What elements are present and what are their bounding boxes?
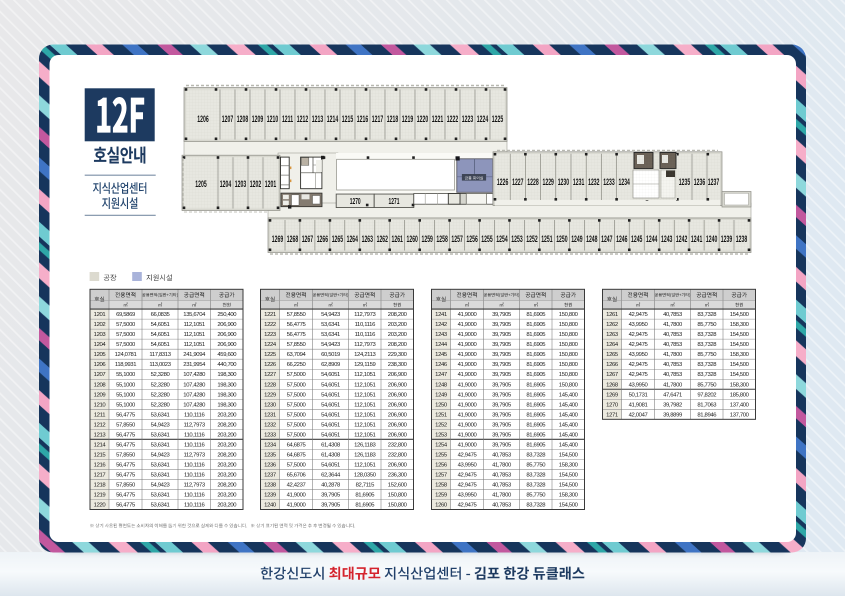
svg-text:1202: 1202 bbox=[94, 322, 106, 328]
svg-text:110,1116: 110,1116 bbox=[355, 322, 377, 328]
svg-text:137,700: 137,700 bbox=[730, 412, 750, 418]
svg-text:97,8202: 97,8202 bbox=[697, 392, 716, 398]
svg-text:56,4775: 56,4775 bbox=[116, 412, 136, 418]
svg-text:203,200: 203,200 bbox=[217, 472, 237, 478]
svg-text:39,7905: 39,7905 bbox=[492, 312, 512, 318]
svg-text:198,300: 198,300 bbox=[217, 382, 237, 388]
svg-text:154,500: 154,500 bbox=[730, 342, 750, 348]
svg-text:83,7328: 83,7328 bbox=[526, 472, 546, 478]
svg-text:42,0047: 42,0047 bbox=[629, 412, 648, 418]
svg-text:40,7853: 40,7853 bbox=[663, 332, 683, 338]
svg-text:43,9950: 43,9950 bbox=[458, 492, 478, 498]
svg-text:39,7905: 39,7905 bbox=[492, 412, 512, 418]
svg-text:107,4280: 107,4280 bbox=[183, 372, 206, 378]
svg-text:57,8550: 57,8550 bbox=[287, 312, 307, 318]
svg-text:57,8550: 57,8550 bbox=[116, 422, 136, 428]
svg-text:1258: 1258 bbox=[435, 482, 448, 488]
svg-text:1231: 1231 bbox=[264, 412, 276, 418]
svg-text:56,4775: 56,4775 bbox=[116, 492, 136, 498]
svg-text:203,200: 203,200 bbox=[388, 322, 408, 328]
svg-text:206,900: 206,900 bbox=[217, 342, 237, 348]
svg-text:1229: 1229 bbox=[264, 392, 276, 398]
svg-text:137,400: 137,400 bbox=[730, 402, 750, 408]
svg-text:41,7800: 41,7800 bbox=[492, 462, 512, 468]
svg-text:1240: 1240 bbox=[264, 502, 277, 508]
svg-text:85,7750: 85,7750 bbox=[526, 492, 546, 498]
svg-text:203,200: 203,200 bbox=[217, 492, 237, 498]
svg-text:43,9950: 43,9950 bbox=[629, 352, 649, 358]
svg-text:206,900: 206,900 bbox=[217, 332, 237, 338]
svg-text:112,7973: 112,7973 bbox=[184, 422, 206, 428]
svg-text:1260: 1260 bbox=[435, 502, 448, 508]
svg-text:135,6704: 135,6704 bbox=[183, 312, 206, 318]
svg-text:1205: 1205 bbox=[94, 352, 107, 358]
svg-text:81,6905: 81,6905 bbox=[526, 352, 546, 358]
svg-text:112,1051: 112,1051 bbox=[184, 332, 205, 338]
svg-text:1207: 1207 bbox=[94, 372, 106, 378]
svg-text:1210: 1210 bbox=[94, 402, 107, 408]
svg-text:39,7905: 39,7905 bbox=[492, 402, 512, 408]
svg-text:81,6905: 81,6905 bbox=[526, 432, 546, 438]
svg-text:1268: 1268 bbox=[606, 382, 619, 388]
svg-text:112,1051: 112,1051 bbox=[184, 342, 205, 348]
svg-text:1216: 1216 bbox=[94, 462, 107, 468]
svg-text:41,9000: 41,9000 bbox=[458, 412, 478, 418]
svg-text:63,7094: 63,7094 bbox=[287, 352, 307, 358]
svg-text:41,7800: 41,7800 bbox=[663, 322, 683, 328]
svg-text:42,9475: 42,9475 bbox=[458, 482, 478, 488]
svg-text:57,5000: 57,5000 bbox=[287, 372, 307, 378]
svg-text:1262: 1262 bbox=[606, 322, 618, 328]
svg-text:110,1116: 110,1116 bbox=[184, 472, 206, 478]
svg-text:203,200: 203,200 bbox=[217, 502, 237, 508]
svg-text:203,200: 203,200 bbox=[217, 412, 237, 418]
svg-text:145,400: 145,400 bbox=[559, 402, 579, 408]
svg-text:50,1731: 50,1731 bbox=[629, 392, 648, 398]
svg-text:57,8550: 57,8550 bbox=[116, 482, 136, 488]
svg-text:42,9475: 42,9475 bbox=[458, 502, 478, 508]
svg-text:1253: 1253 bbox=[435, 432, 448, 438]
svg-text:56,4775: 56,4775 bbox=[116, 462, 136, 468]
svg-text:52,3280: 52,3280 bbox=[151, 402, 171, 408]
svg-text:40,7853: 40,7853 bbox=[492, 482, 512, 488]
svg-text:41,9000: 41,9000 bbox=[458, 372, 478, 378]
svg-text:203,200: 203,200 bbox=[217, 442, 237, 448]
svg-text:85,7750: 85,7750 bbox=[697, 382, 717, 388]
svg-text:107,4280: 107,4280 bbox=[183, 392, 206, 398]
svg-text:83,7328: 83,7328 bbox=[697, 372, 717, 378]
svg-text:112,1051: 112,1051 bbox=[354, 422, 375, 428]
svg-text:81,6905: 81,6905 bbox=[526, 342, 546, 348]
svg-text:1247: 1247 bbox=[435, 372, 447, 378]
svg-text:81,6905: 81,6905 bbox=[526, 402, 546, 408]
svg-text:83,7328: 83,7328 bbox=[697, 362, 717, 368]
svg-text:154,500: 154,500 bbox=[559, 502, 579, 508]
svg-text:1221: 1221 bbox=[264, 312, 276, 318]
svg-text:1270: 1270 bbox=[606, 402, 619, 408]
svg-text:208,200: 208,200 bbox=[388, 342, 408, 348]
svg-text:53,6341: 53,6341 bbox=[151, 502, 170, 508]
svg-text:1219: 1219 bbox=[94, 492, 106, 498]
svg-text:241,9094: 241,9094 bbox=[183, 352, 206, 358]
svg-text:41,9000: 41,9000 bbox=[287, 492, 307, 498]
svg-text:110,1116: 110,1116 bbox=[184, 492, 206, 498]
svg-text:54,6051: 54,6051 bbox=[321, 432, 340, 438]
svg-text:85,7750: 85,7750 bbox=[697, 352, 717, 358]
svg-text:40,7853: 40,7853 bbox=[492, 452, 512, 458]
svg-text:81,6905: 81,6905 bbox=[526, 322, 546, 328]
svg-text:1239: 1239 bbox=[264, 492, 276, 498]
svg-text:41,9000: 41,9000 bbox=[458, 352, 478, 358]
svg-text:43,9950: 43,9950 bbox=[629, 322, 649, 328]
svg-text:206,900: 206,900 bbox=[217, 322, 237, 328]
svg-text:81,6905: 81,6905 bbox=[526, 312, 546, 318]
svg-text:1222: 1222 bbox=[264, 322, 276, 328]
svg-text:150,800: 150,800 bbox=[559, 382, 579, 388]
svg-text:42,9475: 42,9475 bbox=[629, 332, 649, 338]
svg-text:126,1183: 126,1183 bbox=[354, 452, 376, 458]
svg-text:42,9475: 42,9475 bbox=[629, 362, 649, 368]
svg-text:54,6051: 54,6051 bbox=[321, 372, 340, 378]
svg-text:81,6905: 81,6905 bbox=[526, 362, 546, 368]
svg-text:152,600: 152,600 bbox=[388, 482, 408, 488]
svg-text:440,700: 440,700 bbox=[217, 362, 237, 368]
svg-text:43,9950: 43,9950 bbox=[458, 462, 478, 468]
svg-text:39,7905: 39,7905 bbox=[492, 442, 512, 448]
svg-text:41,9000: 41,9000 bbox=[458, 342, 478, 348]
svg-text:1246: 1246 bbox=[435, 362, 448, 368]
svg-text:1232: 1232 bbox=[264, 422, 276, 428]
svg-text:198,300: 198,300 bbox=[217, 372, 237, 378]
svg-text:203,200: 203,200 bbox=[217, 432, 237, 438]
svg-text:1256: 1256 bbox=[435, 462, 448, 468]
svg-text:107,4280: 107,4280 bbox=[183, 382, 206, 388]
svg-text:39,7905: 39,7905 bbox=[321, 502, 341, 508]
svg-text:57,5000: 57,5000 bbox=[287, 392, 307, 398]
svg-text:150,800: 150,800 bbox=[559, 352, 579, 358]
svg-text:1230: 1230 bbox=[264, 402, 277, 408]
svg-text:41,9000: 41,9000 bbox=[458, 432, 478, 438]
svg-text:39,7905: 39,7905 bbox=[492, 422, 512, 428]
svg-text:39,7982: 39,7982 bbox=[663, 402, 682, 408]
svg-text:62,3644: 62,3644 bbox=[321, 472, 341, 478]
svg-text:81,6905: 81,6905 bbox=[355, 502, 375, 508]
svg-text:54,6051: 54,6051 bbox=[151, 342, 170, 348]
svg-text:208,200: 208,200 bbox=[217, 482, 237, 488]
svg-text:1236: 1236 bbox=[264, 462, 277, 468]
svg-text:41,9000: 41,9000 bbox=[458, 312, 478, 318]
svg-text:56,4775: 56,4775 bbox=[116, 432, 136, 438]
svg-text:39,7905: 39,7905 bbox=[492, 362, 512, 368]
svg-text:113,0023: 113,0023 bbox=[149, 362, 171, 368]
svg-text:54,9423: 54,9423 bbox=[321, 342, 341, 348]
svg-text:40,7853: 40,7853 bbox=[663, 372, 683, 378]
svg-text:1244: 1244 bbox=[435, 342, 448, 348]
svg-text:66,2250: 66,2250 bbox=[287, 362, 307, 368]
svg-text:52,3280: 52,3280 bbox=[151, 392, 171, 398]
svg-text:53,6341: 53,6341 bbox=[321, 322, 340, 328]
svg-text:54,6051: 54,6051 bbox=[321, 412, 340, 418]
svg-text:56,4775: 56,4775 bbox=[116, 442, 136, 448]
svg-text:118,9931: 118,9931 bbox=[115, 362, 136, 368]
svg-text:124,2113: 124,2113 bbox=[354, 352, 376, 358]
svg-text:41,9000: 41,9000 bbox=[287, 502, 307, 508]
svg-text:1252: 1252 bbox=[435, 422, 447, 428]
svg-text:1224: 1224 bbox=[264, 342, 277, 348]
svg-text:231,9954: 231,9954 bbox=[183, 362, 206, 368]
svg-text:1223: 1223 bbox=[264, 332, 277, 338]
svg-text:1234: 1234 bbox=[264, 442, 277, 448]
svg-text:39,7905: 39,7905 bbox=[492, 382, 512, 388]
svg-text:1227: 1227 bbox=[264, 372, 276, 378]
svg-text:1233: 1233 bbox=[264, 432, 277, 438]
svg-text:112,7973: 112,7973 bbox=[184, 452, 206, 458]
svg-text:53,6341: 53,6341 bbox=[151, 492, 170, 498]
svg-text:85,7750: 85,7750 bbox=[697, 322, 717, 328]
svg-text:56,4775: 56,4775 bbox=[287, 322, 307, 328]
svg-text:1228: 1228 bbox=[264, 382, 277, 388]
svg-text:112,1051: 112,1051 bbox=[354, 412, 375, 418]
svg-text:1254: 1254 bbox=[435, 442, 448, 448]
svg-text:57,5000: 57,5000 bbox=[116, 342, 136, 348]
svg-text:52,3280: 52,3280 bbox=[151, 382, 171, 388]
svg-text:154,500: 154,500 bbox=[559, 482, 579, 488]
svg-text:40,7853: 40,7853 bbox=[663, 342, 683, 348]
svg-text:112,1051: 112,1051 bbox=[354, 382, 375, 388]
svg-text:1263: 1263 bbox=[606, 332, 619, 338]
svg-text:145,400: 145,400 bbox=[559, 392, 579, 398]
svg-text:41,9000: 41,9000 bbox=[458, 442, 478, 448]
svg-text:83,7328: 83,7328 bbox=[697, 332, 717, 338]
svg-text:229,300: 229,300 bbox=[388, 352, 408, 358]
svg-text:110,1116: 110,1116 bbox=[184, 462, 206, 468]
svg-text:150,800: 150,800 bbox=[388, 502, 408, 508]
svg-text:39,8899: 39,8899 bbox=[663, 412, 682, 418]
svg-text:1269: 1269 bbox=[606, 392, 618, 398]
svg-text:57,5000: 57,5000 bbox=[116, 332, 136, 338]
svg-text:57,5000: 57,5000 bbox=[287, 402, 307, 408]
svg-text:112,1051: 112,1051 bbox=[184, 322, 205, 328]
svg-text:57,8550: 57,8550 bbox=[287, 342, 307, 348]
svg-text:459,600: 459,600 bbox=[217, 352, 237, 358]
svg-text:39,7905: 39,7905 bbox=[492, 372, 512, 378]
svg-text:81,6905: 81,6905 bbox=[526, 422, 546, 428]
svg-text:1226: 1226 bbox=[264, 362, 277, 368]
svg-text:1220: 1220 bbox=[94, 502, 107, 508]
svg-text:40,7853: 40,7853 bbox=[663, 312, 683, 318]
svg-text:158,300: 158,300 bbox=[730, 322, 750, 328]
svg-text:53,6341: 53,6341 bbox=[151, 462, 170, 468]
svg-text:232,800: 232,800 bbox=[388, 452, 408, 458]
svg-text:81,6905: 81,6905 bbox=[526, 392, 546, 398]
svg-text:117,8313: 117,8313 bbox=[149, 352, 171, 358]
svg-text:53,6341: 53,6341 bbox=[151, 472, 170, 478]
svg-text:57,8550: 57,8550 bbox=[116, 452, 136, 458]
svg-text:203,200: 203,200 bbox=[388, 332, 408, 338]
svg-text:128,0350: 128,0350 bbox=[354, 472, 377, 478]
svg-text:1211: 1211 bbox=[94, 412, 105, 418]
svg-text:83,7328: 83,7328 bbox=[526, 452, 546, 458]
svg-text:56,4775: 56,4775 bbox=[116, 472, 136, 478]
svg-text:1215: 1215 bbox=[94, 452, 107, 458]
svg-text:47,6471: 47,6471 bbox=[663, 392, 682, 398]
svg-text:64,6875: 64,6875 bbox=[287, 452, 307, 458]
svg-text:42,9475: 42,9475 bbox=[629, 372, 649, 378]
svg-text:54,6051: 54,6051 bbox=[151, 322, 170, 328]
svg-text:236,300: 236,300 bbox=[388, 472, 408, 478]
svg-text:126,1183: 126,1183 bbox=[354, 442, 376, 448]
svg-text:42,9475: 42,9475 bbox=[458, 472, 478, 478]
svg-text:39,7905: 39,7905 bbox=[492, 352, 512, 358]
svg-text:112,1051: 112,1051 bbox=[354, 462, 375, 468]
svg-text:42,9475: 42,9475 bbox=[629, 312, 649, 318]
svg-text:1214: 1214 bbox=[94, 442, 107, 448]
svg-text:41,9000: 41,9000 bbox=[458, 382, 478, 388]
svg-text:83,7328: 83,7328 bbox=[697, 312, 717, 318]
svg-text:208,200: 208,200 bbox=[388, 312, 408, 318]
svg-text:61,4308: 61,4308 bbox=[321, 452, 341, 458]
svg-text:112,7973: 112,7973 bbox=[354, 312, 376, 318]
svg-text:40,7853: 40,7853 bbox=[663, 362, 683, 368]
svg-text:145,400: 145,400 bbox=[559, 442, 579, 448]
svg-text:54,6051: 54,6051 bbox=[321, 392, 340, 398]
svg-text:41,9000: 41,9000 bbox=[458, 332, 478, 338]
svg-text:1266: 1266 bbox=[606, 362, 619, 368]
svg-text:53,6341: 53,6341 bbox=[151, 412, 170, 418]
svg-text:42,9475: 42,9475 bbox=[629, 342, 649, 348]
svg-text:124,0781: 124,0781 bbox=[115, 352, 137, 358]
svg-text:1255: 1255 bbox=[435, 452, 448, 458]
svg-text:150,800: 150,800 bbox=[559, 332, 579, 338]
svg-text:112,1051: 112,1051 bbox=[354, 432, 375, 438]
svg-text:112,1051: 112,1051 bbox=[354, 372, 375, 378]
svg-text:54,9423: 54,9423 bbox=[151, 452, 171, 458]
svg-text:1245: 1245 bbox=[435, 352, 448, 358]
svg-text:1237: 1237 bbox=[264, 472, 276, 478]
svg-text:150,800: 150,800 bbox=[559, 342, 579, 348]
svg-text:57,5000: 57,5000 bbox=[287, 382, 307, 388]
svg-text:1208: 1208 bbox=[94, 382, 107, 388]
svg-text:154,500: 154,500 bbox=[559, 472, 579, 478]
svg-text:54,9423: 54,9423 bbox=[151, 422, 171, 428]
svg-text:41,9000: 41,9000 bbox=[458, 322, 478, 328]
svg-text:110,1116: 110,1116 bbox=[184, 432, 206, 438]
svg-text:54,6051: 54,6051 bbox=[321, 422, 340, 428]
svg-text:39,7905: 39,7905 bbox=[492, 342, 512, 348]
svg-text:150,800: 150,800 bbox=[559, 362, 579, 368]
svg-text:41,9000: 41,9000 bbox=[458, 422, 478, 428]
svg-text:41,7800: 41,7800 bbox=[663, 382, 683, 388]
svg-text:150,800: 150,800 bbox=[559, 372, 579, 378]
svg-text:158,300: 158,300 bbox=[730, 382, 750, 388]
svg-text:238,300: 238,300 bbox=[388, 362, 408, 368]
svg-text:206,900: 206,900 bbox=[388, 462, 408, 468]
svg-text:154,500: 154,500 bbox=[730, 312, 750, 318]
svg-text:60,5019: 60,5019 bbox=[321, 352, 340, 358]
svg-text:81,6905: 81,6905 bbox=[526, 412, 546, 418]
svg-text:206,900: 206,900 bbox=[388, 392, 408, 398]
svg-text:206,900: 206,900 bbox=[388, 382, 408, 388]
svg-text:41,9000: 41,9000 bbox=[458, 362, 478, 368]
svg-text:206,900: 206,900 bbox=[388, 412, 408, 418]
svg-text:81,6905: 81,6905 bbox=[526, 332, 546, 338]
svg-text:62,8909: 62,8909 bbox=[321, 362, 340, 368]
svg-text:107,4280: 107,4280 bbox=[183, 402, 206, 408]
svg-text:64,6875: 64,6875 bbox=[287, 442, 307, 448]
svg-text:110,1116: 110,1116 bbox=[184, 502, 206, 508]
svg-text:53,6341: 53,6341 bbox=[321, 332, 340, 338]
svg-text:39,7905: 39,7905 bbox=[492, 432, 512, 438]
svg-text:129,1159: 129,1159 bbox=[354, 362, 375, 368]
svg-text:145,400: 145,400 bbox=[559, 432, 579, 438]
svg-text:40,7853: 40,7853 bbox=[492, 502, 512, 508]
svg-text:150,800: 150,800 bbox=[388, 492, 408, 498]
svg-text:41,9000: 41,9000 bbox=[458, 392, 478, 398]
svg-text:112,1051: 112,1051 bbox=[354, 392, 375, 398]
svg-text:83,7328: 83,7328 bbox=[526, 502, 546, 508]
svg-text:1249: 1249 bbox=[435, 392, 447, 398]
svg-text:158,300: 158,300 bbox=[559, 462, 579, 468]
svg-text:43,9950: 43,9950 bbox=[629, 382, 649, 388]
svg-text:41,9081: 41,9081 bbox=[629, 402, 648, 408]
svg-text:1242: 1242 bbox=[435, 322, 447, 328]
svg-text:81,6905: 81,6905 bbox=[526, 442, 546, 448]
svg-text:206,900: 206,900 bbox=[388, 372, 408, 378]
svg-text:150,800: 150,800 bbox=[559, 322, 579, 328]
svg-text:83,7328: 83,7328 bbox=[697, 342, 717, 348]
svg-text:66,0835: 66,0835 bbox=[151, 312, 171, 318]
svg-text:112,7973: 112,7973 bbox=[354, 342, 376, 348]
svg-text:112,1051: 112,1051 bbox=[354, 402, 375, 408]
svg-text:154,500: 154,500 bbox=[730, 332, 750, 338]
svg-text:206,900: 206,900 bbox=[388, 422, 408, 428]
svg-text:110,1116: 110,1116 bbox=[184, 412, 206, 418]
svg-text:57,5000: 57,5000 bbox=[287, 412, 307, 418]
svg-text:1248: 1248 bbox=[435, 382, 448, 388]
svg-text:154,500: 154,500 bbox=[559, 452, 579, 458]
svg-text:198,300: 198,300 bbox=[217, 392, 237, 398]
svg-text:145,400: 145,400 bbox=[559, 422, 579, 428]
svg-text:1241: 1241 bbox=[435, 312, 447, 318]
svg-text:158,300: 158,300 bbox=[730, 352, 750, 358]
svg-text:52,3280: 52,3280 bbox=[151, 372, 171, 378]
svg-text:42,4237: 42,4237 bbox=[287, 482, 306, 488]
svg-text:39,7905: 39,7905 bbox=[492, 392, 512, 398]
svg-text:1217: 1217 bbox=[94, 472, 106, 478]
svg-text:82,7115: 82,7115 bbox=[356, 482, 375, 488]
svg-text:81,8946: 81,8946 bbox=[697, 412, 717, 418]
svg-text:1206: 1206 bbox=[94, 362, 107, 368]
svg-text:54,6051: 54,6051 bbox=[321, 402, 340, 408]
svg-text:40,7853: 40,7853 bbox=[492, 472, 512, 478]
svg-text:81,6905: 81,6905 bbox=[355, 492, 375, 498]
svg-text:54,6051: 54,6051 bbox=[321, 462, 340, 468]
svg-text:41,7800: 41,7800 bbox=[663, 352, 683, 358]
svg-text:1204: 1204 bbox=[94, 342, 107, 348]
svg-text:55,1000: 55,1000 bbox=[116, 392, 136, 398]
svg-text:54,9423: 54,9423 bbox=[151, 482, 171, 488]
svg-text:154,500: 154,500 bbox=[730, 372, 750, 378]
svg-text:56,4775: 56,4775 bbox=[287, 332, 307, 338]
svg-text:53,6341: 53,6341 bbox=[151, 432, 170, 438]
svg-text:1212: 1212 bbox=[94, 422, 106, 428]
svg-text:1235: 1235 bbox=[264, 452, 277, 458]
svg-text:55,1000: 55,1000 bbox=[116, 402, 136, 408]
svg-text:81,6905: 81,6905 bbox=[526, 382, 546, 388]
svg-text:1203: 1203 bbox=[94, 332, 107, 338]
svg-text:83,7328: 83,7328 bbox=[526, 482, 546, 488]
svg-text:1264: 1264 bbox=[606, 342, 619, 348]
